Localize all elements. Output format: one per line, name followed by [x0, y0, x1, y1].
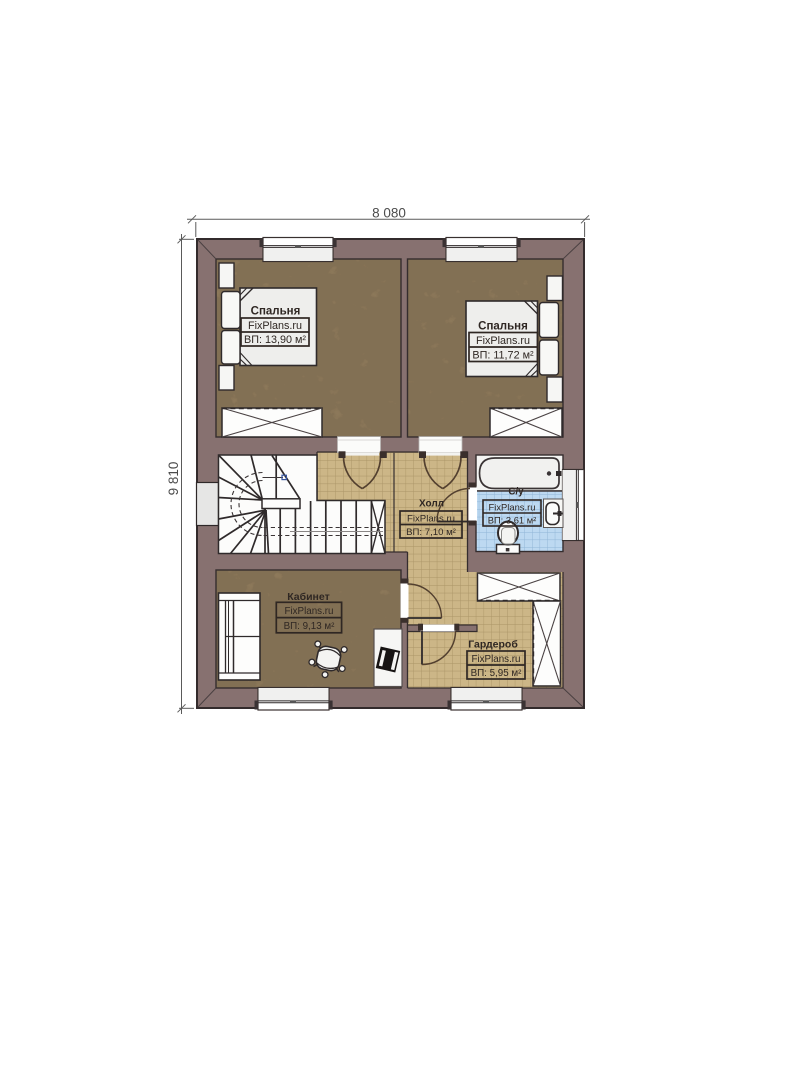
svg-text:Кабинет: Кабинет: [287, 591, 330, 603]
svg-text:Холл: Холл: [419, 499, 444, 510]
svg-text:FixPlans.ru: FixPlans.ru: [285, 606, 334, 617]
svg-text:FixPlans.ru: FixPlans.ru: [476, 335, 530, 347]
svg-text:FixPlans.ru: FixPlans.ru: [407, 514, 455, 525]
svg-text:С/у: С/у: [508, 487, 524, 498]
svg-text:Гардероб: Гардероб: [468, 639, 518, 651]
svg-text:ВП: 5,95 м²: ВП: 5,95 м²: [471, 668, 523, 679]
svg-text:Спальня: Спальня: [478, 321, 528, 333]
svg-text:ВП: 13,90 м²: ВП: 13,90 м²: [244, 334, 306, 346]
svg-text:ВП: 11,72 м²: ВП: 11,72 м²: [472, 350, 534, 362]
svg-text:8 080: 8 080: [372, 206, 406, 221]
svg-text:FixPlans.ru: FixPlans.ru: [248, 320, 302, 332]
svg-text:ВП: 3,61 м²: ВП: 3,61 м²: [488, 515, 537, 526]
svg-text:ВП: 9,13 м²: ВП: 9,13 м²: [284, 621, 336, 632]
svg-text:FixPlans.ru: FixPlans.ru: [472, 654, 521, 665]
svg-text:Спальня: Спальня: [251, 306, 301, 318]
svg-text:FixPlans.ru: FixPlans.ru: [489, 502, 536, 513]
svg-text:ВП: 7,10 м²: ВП: 7,10 м²: [406, 527, 457, 538]
svg-text:9 810: 9 810: [166, 462, 181, 496]
